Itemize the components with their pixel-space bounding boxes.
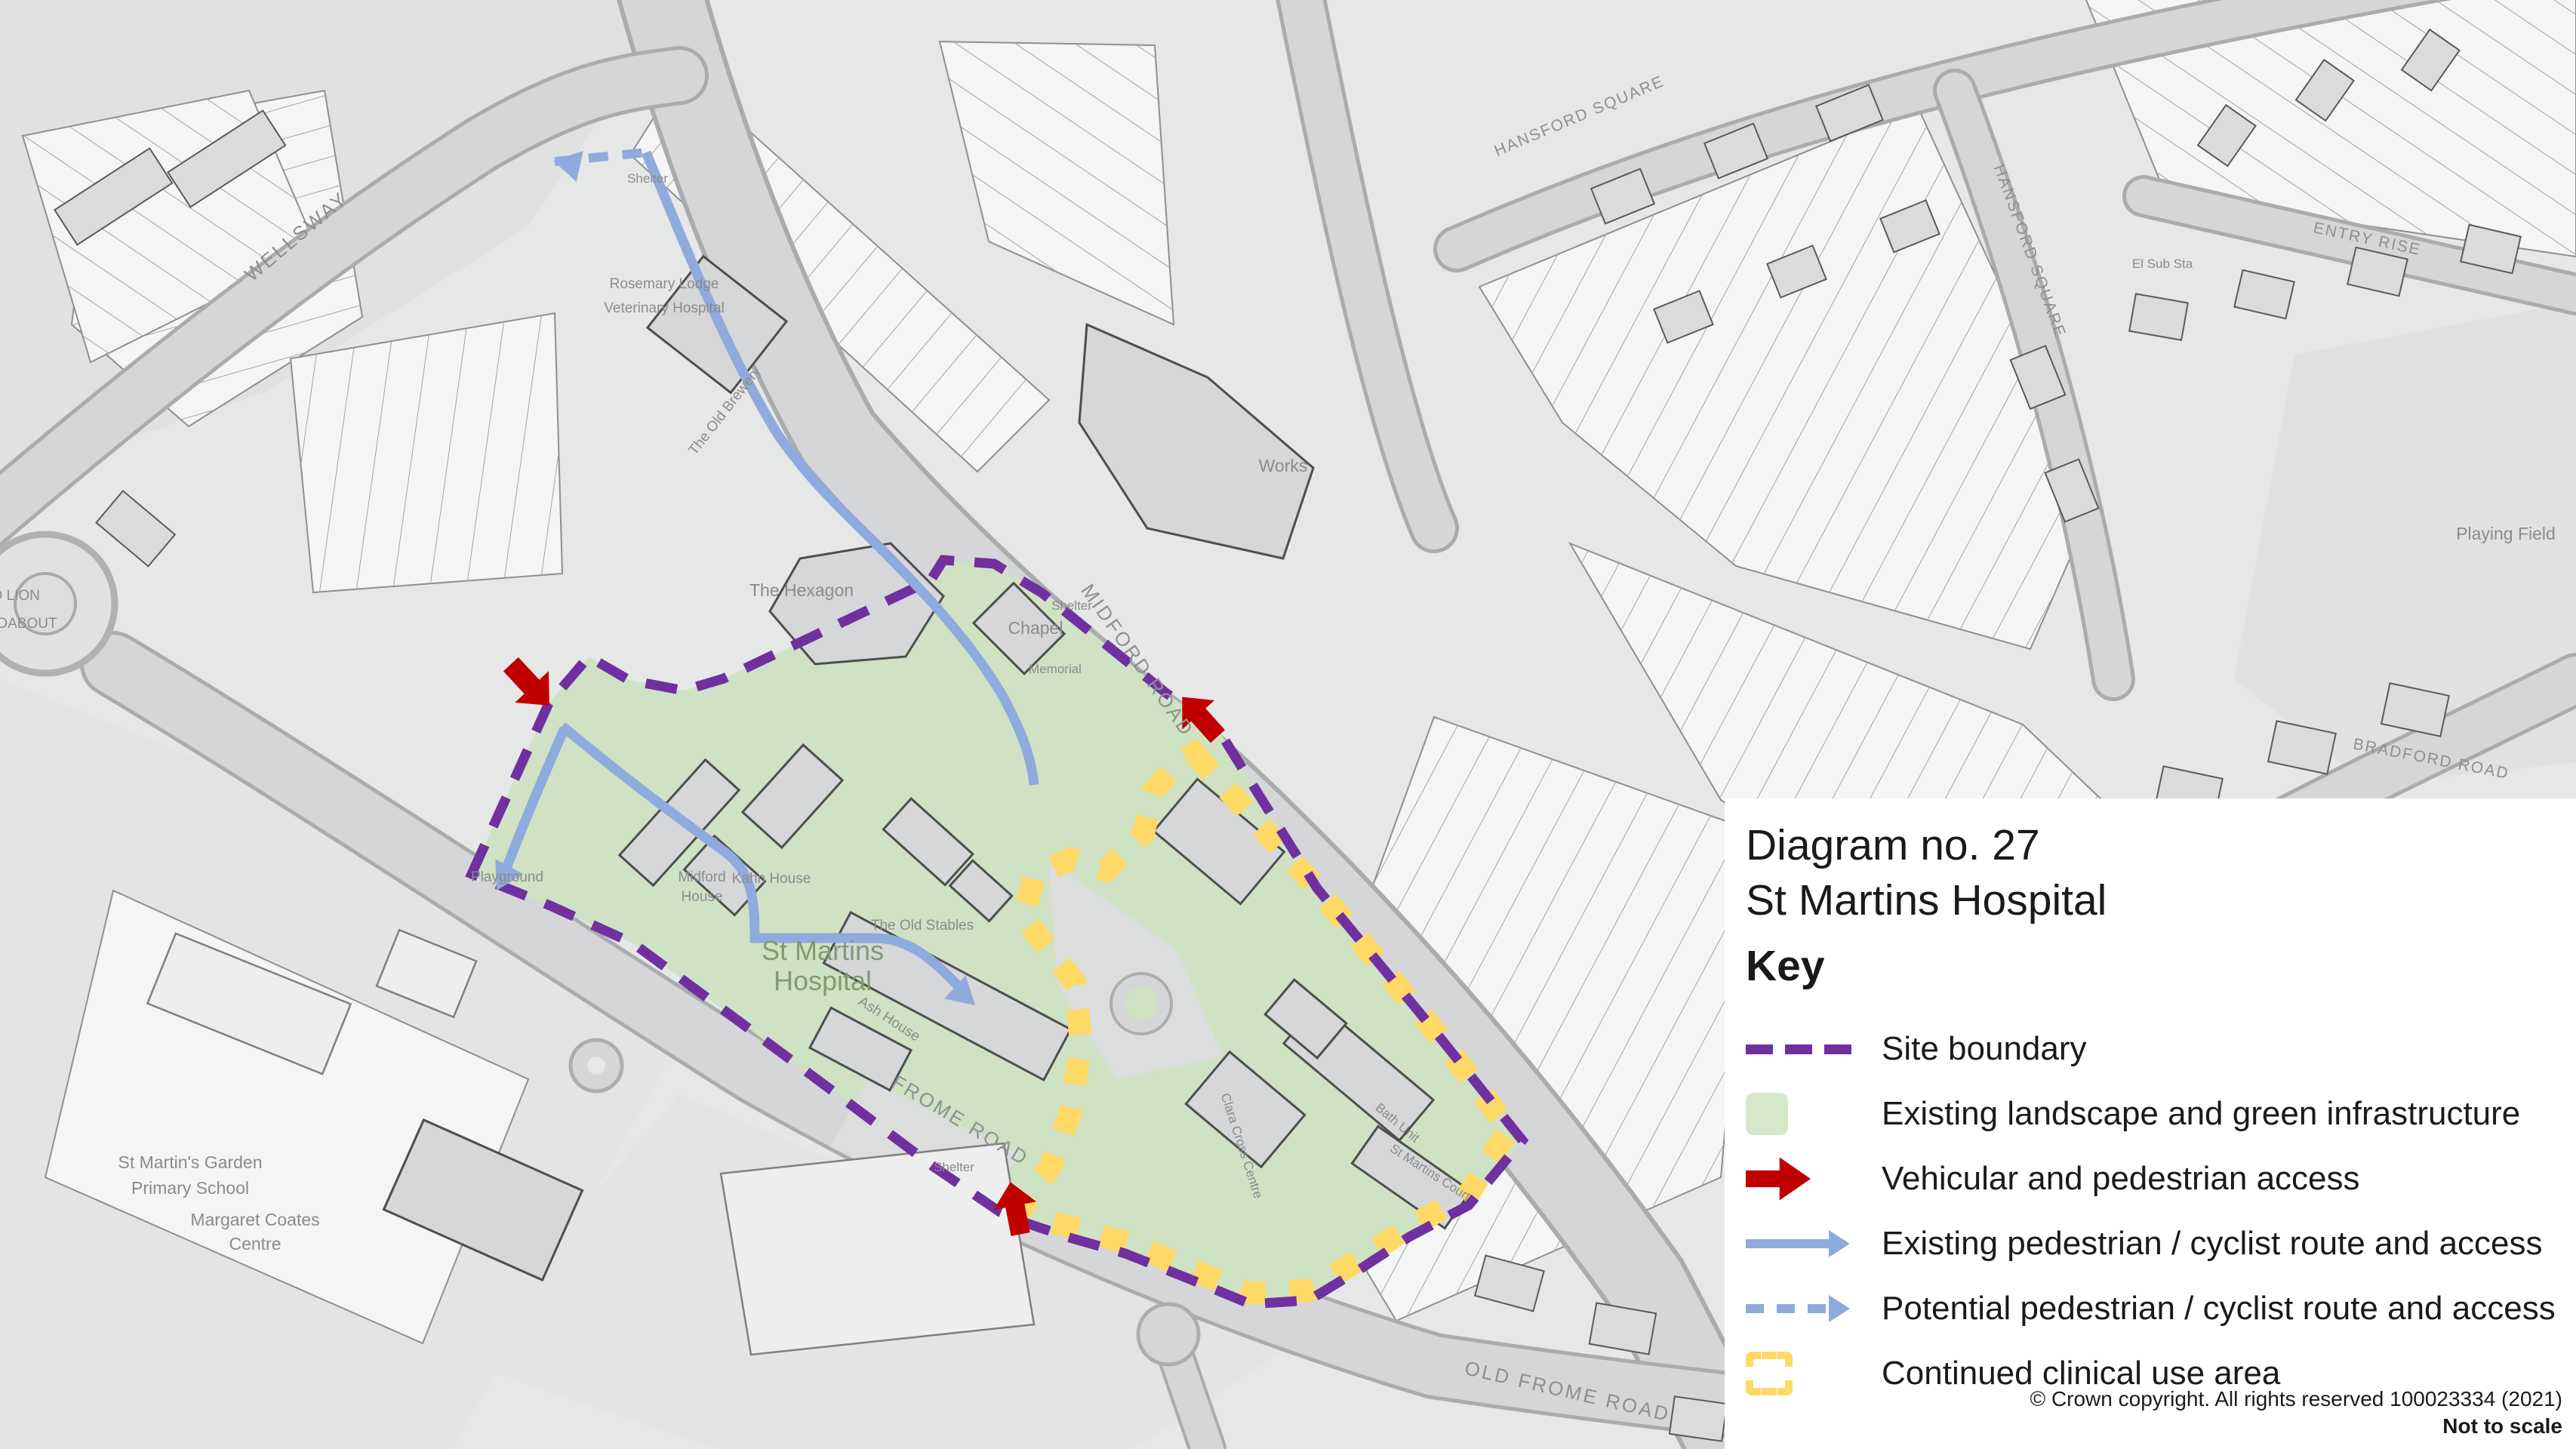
green-infrastructure-swatch [1746,1093,1788,1135]
place-label-works: Works [1259,456,1308,475]
site-boundary-swatch [1746,1044,1860,1054]
place-label-midford-house-1: Midford [678,869,725,885]
blue-dashed-arrow-icon [1746,1304,1830,1313]
key-heading: Key [1746,939,2561,994]
scale-note: Not to scale [2030,1413,2562,1440]
legend-rows: Site boundary Existing landscape and gre… [1746,1017,2561,1406]
place-label-hexagon: The Hexagon [749,580,854,600]
place-label-playing-field: Playing Field [2456,524,2556,543]
place-label-coates-1: Margaret Coates [190,1210,319,1229]
place-label-hospital-1: St Martins [762,935,884,966]
place-label-school-1: St Martin's Garden [118,1152,262,1172]
red-arrow-icon [1746,1155,1811,1202]
place-label-memorial: Memorial [1029,662,1082,676]
legend-row-vehicular-access: Vehicular and pedestrian access [1746,1146,2561,1211]
legend-row-potential-route: Potential pedestrian / cyclist route and… [1746,1276,2561,1341]
site-title: St Martins Hospital [1746,873,2561,928]
legend-row-existing-route: Existing pedestrian / cyclist route and … [1746,1211,2561,1276]
legend-panel: Diagram no. 27 St Martins Hospital Key S… [1725,798,2576,1449]
place-label-coates-2: Centre [229,1234,281,1254]
copyright-text: © Crown copyright. All rights reserved 1… [2030,1386,2562,1413]
place-label-midford-house-2: House [682,889,723,905]
place-label-shelter-2: Shelter [1051,598,1092,613]
store-building [721,1143,1034,1355]
place-label-playground: Playground [471,869,543,885]
legend-label: Vehicular and pedestrian access [1882,1160,2360,1198]
place-label-chapel: Chapel [1008,618,1063,638]
place-label-red-lion-1: RED LION [0,588,40,604]
place-label-rosemary-2: Veterinary Hospital [604,300,724,316]
place-label-shelter-1: Shelter [627,171,668,186]
place-label-school-2: Primary School [131,1178,249,1198]
clinical-area-swatch [1746,1352,1793,1395]
blue-arrow-icon [1746,1239,1830,1248]
place-label-hospital-2: Hospital [774,965,872,996]
place-label-el-sub-sta: El Sub Sta [2132,257,2193,271]
place-label-rosemary-1: Rosemary Lodge [610,276,719,292]
legend-label: Potential pedestrian / cyclist route and… [1882,1290,2556,1327]
legend-label: Site boundary [1882,1030,2087,1068]
legend-label: Existing pedestrian / cyclist route and … [1882,1225,2543,1263]
legend-row-green-infrastructure: Existing landscape and green infrastruct… [1746,1081,2561,1146]
place-label-kahn-house: Kahn House [732,871,811,887]
legend-row-site-boundary: Site boundary [1746,1017,2561,1081]
place-label-old-stables: The Old Stables [871,918,974,934]
legend-label: Existing landscape and green infrastruct… [1882,1095,2520,1133]
place-label-shelter-3: Shelter [934,1160,974,1174]
screenshot: WELLSWAY MIDFORD ROAD FROME ROAD OLD FRO… [0,0,2576,1449]
diagram-number: Diagram no. 27 [1746,818,2561,873]
copyright-block: © Crown copyright. All rights reserved 1… [2030,1386,2562,1440]
place-label-red-lion-2: ROUNDABOUT [0,616,57,632]
